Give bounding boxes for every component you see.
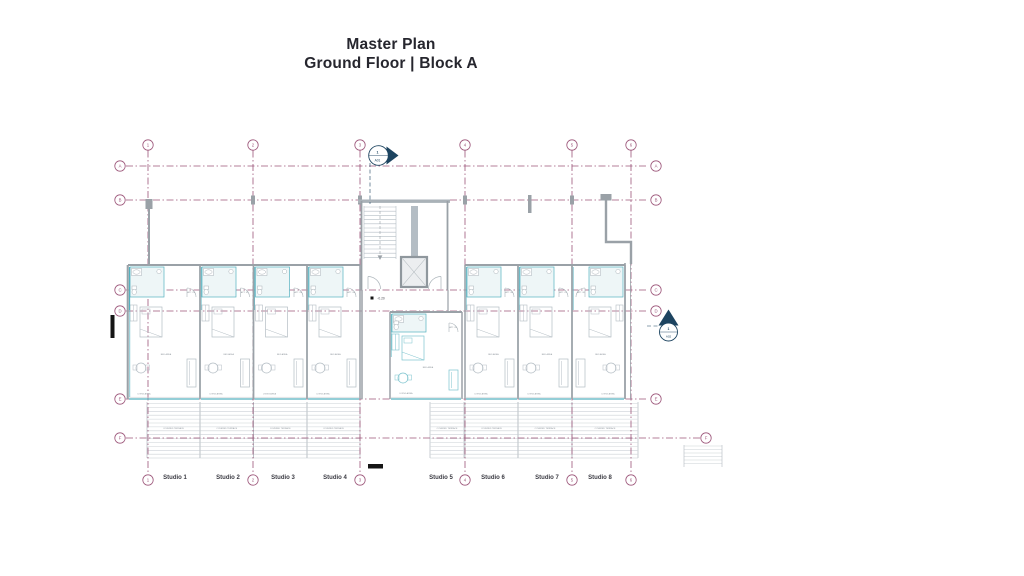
- svg-text:LIVING AREA: LIVING AREA: [602, 393, 616, 396]
- svg-text:F: F: [119, 436, 122, 441]
- studio-labels: Studio 1Studio 2Studio 3Studio 4Studio 5…: [163, 475, 612, 481]
- studio-unit-1: APT. 01BED AREALIVING AREA: [128, 265, 200, 399]
- svg-text:BED AREA: BED AREA: [488, 353, 499, 356]
- scale-bar: [368, 464, 383, 469]
- terraces: COVERED TERRACECOVERED TERRACECOVERED TE…: [147, 402, 722, 467]
- svg-text:APT. 04: APT. 04: [347, 291, 355, 294]
- studio-unit-8: APT. 08BED AREALIVING AREA: [572, 265, 625, 399]
- svg-text:1: 1: [377, 150, 379, 154]
- svg-text:BED AREA: BED AREA: [161, 353, 172, 356]
- svg-text:B: B: [655, 198, 658, 203]
- svg-text:LIVING AREA: LIVING AREA: [400, 392, 414, 395]
- svg-text:A02: A02: [666, 335, 672, 339]
- drawing-sheet: Master Plan Ground Floor | Block A COVER…: [0, 0, 1024, 576]
- studio-unit-7: APT. 07BED AREALIVING AREA: [518, 265, 572, 399]
- studio-label: Studio 6: [481, 475, 505, 481]
- reference-marks: [111, 315, 384, 469]
- svg-text:APT. 01: APT. 01: [187, 291, 195, 294]
- svg-text:COVERED TERRACE: COVERED TERRACE: [437, 427, 458, 430]
- floor-plan-drawing: COVERED TERRACECOVERED TERRACECOVERED TE…: [0, 0, 1024, 576]
- svg-text:LIVING AREA: LIVING AREA: [210, 393, 224, 396]
- svg-text:A01: A01: [375, 158, 381, 162]
- svg-text:B: B: [119, 198, 122, 203]
- studio-label: Studio 4: [323, 475, 347, 481]
- svg-text:LIVING AREA: LIVING AREA: [263, 393, 277, 396]
- studio-label: Studio 5: [429, 475, 453, 481]
- svg-text:APT. 02: APT. 02: [241, 291, 249, 294]
- north-bar: [111, 315, 115, 338]
- svg-text:F: F: [705, 436, 708, 441]
- svg-text:LIVING AREA: LIVING AREA: [475, 393, 489, 396]
- svg-text:D: D: [118, 309, 121, 314]
- svg-text:LIVING AREA: LIVING AREA: [528, 393, 542, 396]
- studio-unit-4: APT. 04BED AREALIVING AREA: [307, 265, 360, 399]
- svg-text:BED AREA: BED AREA: [423, 366, 434, 369]
- svg-text:-0.20: -0.20: [377, 297, 385, 301]
- svg-text:BED AREA: BED AREA: [330, 353, 341, 356]
- studio-unit-5: APT. 05BED AREALIVING AREA: [390, 312, 462, 399]
- svg-text:COVERED TERRACE: COVERED TERRACE: [595, 427, 616, 430]
- svg-text:APT. 07: APT. 07: [559, 291, 567, 294]
- svg-text:COVERED TERRACE: COVERED TERRACE: [481, 427, 502, 430]
- svg-text:A: A: [119, 164, 122, 169]
- svg-text:COVERED TERRACE: COVERED TERRACE: [323, 427, 344, 430]
- svg-text:APT. 05: APT. 05: [449, 326, 457, 329]
- svg-text:APT. 06: APT. 06: [505, 291, 513, 294]
- svg-text:APT. 08: APT. 08: [577, 291, 585, 294]
- studio-label: Studio 3: [271, 475, 295, 481]
- svg-text:BED AREA: BED AREA: [542, 353, 553, 356]
- svg-text:C: C: [654, 288, 657, 293]
- svg-text:COVERED TERRACE: COVERED TERRACE: [535, 427, 556, 430]
- svg-text:C: C: [118, 288, 121, 293]
- svg-text:E: E: [655, 397, 658, 402]
- svg-text:APT. 03: APT. 03: [294, 291, 302, 294]
- svg-text:LIVING AREA: LIVING AREA: [317, 393, 331, 396]
- svg-text:BED AREA: BED AREA: [224, 353, 235, 356]
- studio-label: Studio 8: [588, 475, 612, 481]
- svg-text:COVERED TERRACE: COVERED TERRACE: [216, 427, 237, 430]
- svg-text:E: E: [119, 397, 122, 402]
- svg-text:D: D: [654, 309, 657, 314]
- core: -0.20: [358, 200, 450, 400]
- studio-label: Studio 2: [216, 475, 240, 481]
- studio-label: Studio 1: [163, 475, 187, 481]
- svg-text:COVERED TERRACE: COVERED TERRACE: [270, 427, 291, 430]
- studio-unit-2: APT. 02BED AREALIVING AREA: [200, 265, 254, 399]
- studio-unit-3: APT. 03BED AREALIVING AREA: [254, 265, 308, 399]
- svg-text:1: 1: [668, 327, 670, 331]
- studio-label: Studio 7: [535, 475, 559, 481]
- svg-text:LIVING AREA: LIVING AREA: [138, 393, 152, 396]
- studio-unit-6: APT. 06BED AREALIVING AREA: [465, 265, 518, 399]
- svg-text:BED AREA: BED AREA: [595, 353, 606, 356]
- svg-text:COVERED TERRACE: COVERED TERRACE: [163, 427, 184, 430]
- svg-text:A: A: [655, 164, 658, 169]
- svg-text:BED AREA: BED AREA: [277, 353, 288, 356]
